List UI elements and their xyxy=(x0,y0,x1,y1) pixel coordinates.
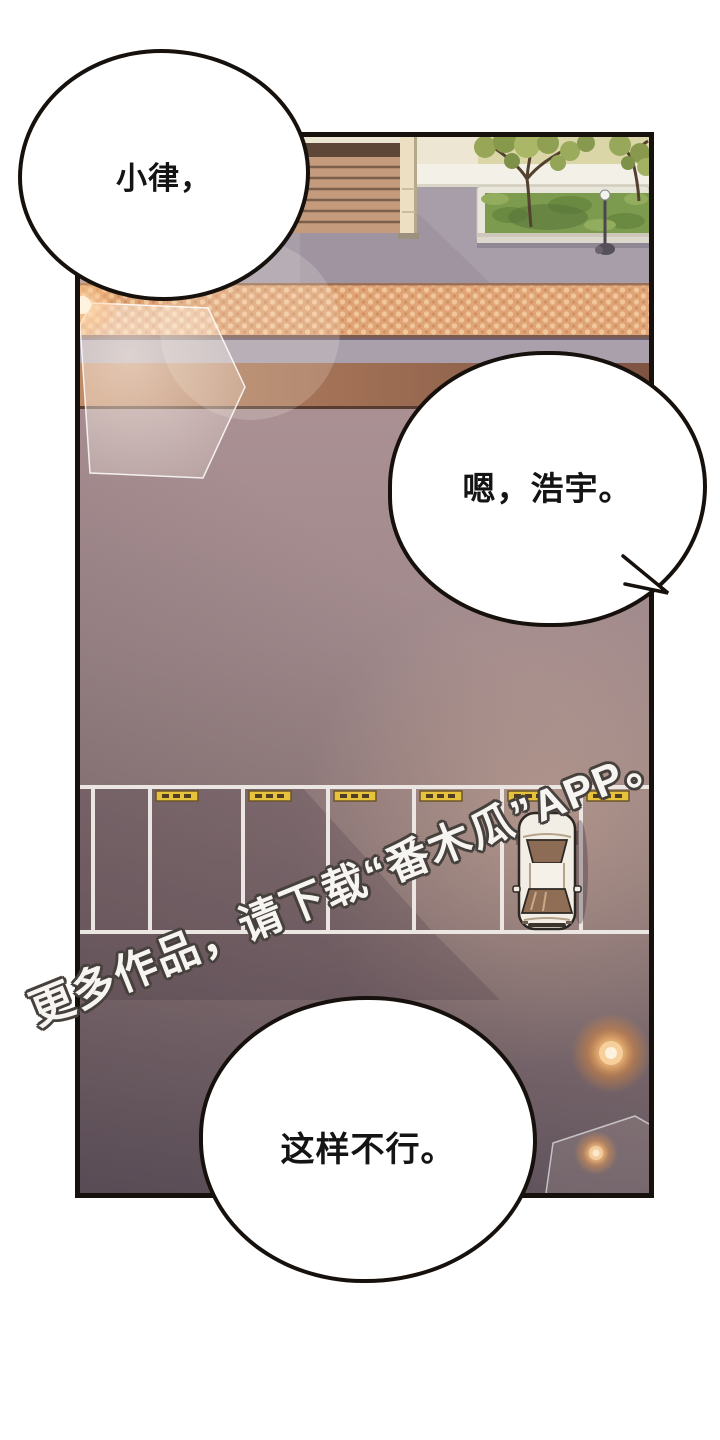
speech-bubble-tail xyxy=(615,550,675,600)
speech-bubble-bottom: 这样不行。 xyxy=(199,996,537,1283)
speech-text: 嗯，浩宇。 xyxy=(463,462,633,516)
car-windshield xyxy=(522,889,572,913)
car-bumper xyxy=(528,923,566,927)
car-rear-window xyxy=(527,840,567,863)
lamp-bulb xyxy=(600,190,610,200)
lamp-glow-1 xyxy=(571,1013,649,1093)
tree-shadow xyxy=(508,204,588,230)
speech-text: 小律， xyxy=(116,153,212,198)
car-roof xyxy=(530,863,564,889)
speech-text: 这样不行。 xyxy=(281,1108,456,1171)
rail-wall xyxy=(398,137,419,239)
car-mirror-left xyxy=(513,886,520,892)
speech-bubble-top-left: 小律， xyxy=(18,49,310,301)
car-mirror-right xyxy=(574,886,581,892)
tree-planter xyxy=(477,186,649,248)
